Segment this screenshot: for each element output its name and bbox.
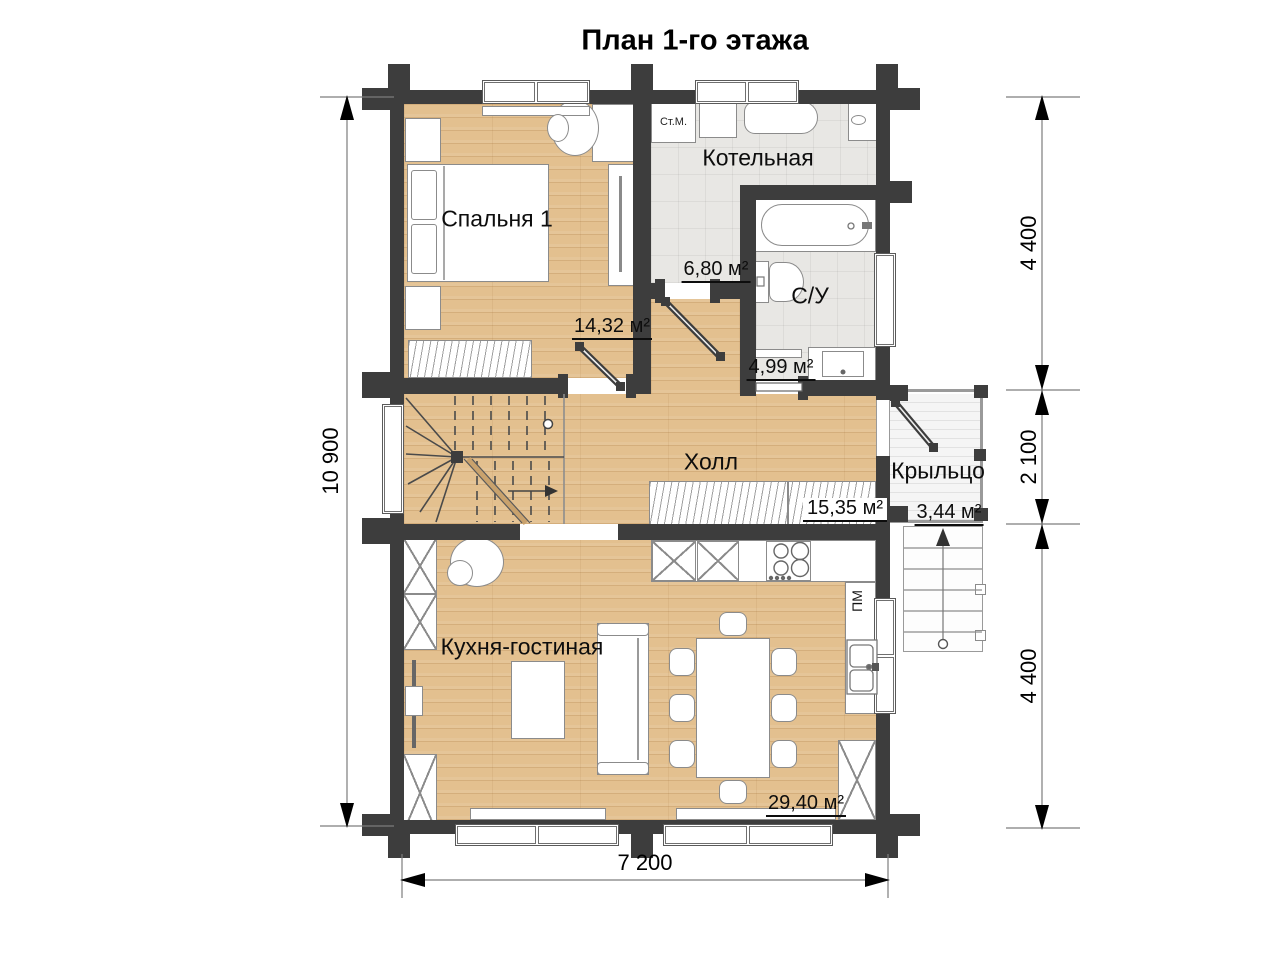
joint-tab — [362, 518, 392, 544]
dining-chair — [771, 694, 797, 722]
window-pane — [697, 82, 746, 102]
window-pane — [484, 82, 535, 102]
porch-area: 3,44 м² — [915, 502, 984, 526]
window — [663, 824, 833, 846]
dining-chair — [719, 780, 747, 804]
window — [695, 80, 799, 104]
window-sill — [482, 106, 590, 116]
bathtub-inner — [761, 204, 869, 246]
floor-plan: План 1-го этажа Ст.М. — [0, 0, 1280, 960]
hall-label: Холл — [684, 449, 738, 476]
outdoor-stairs-base — [903, 526, 983, 652]
left-cabinet — [403, 594, 437, 650]
wall-bathroom-bottom — [800, 380, 876, 396]
wall-bedroom-right — [633, 104, 651, 394]
window-pane — [749, 826, 831, 844]
bathroom-label: С/У — [791, 283, 829, 310]
bedroom-chair-arm — [547, 114, 569, 142]
washing-machine: Ст.М. — [651, 100, 696, 143]
wall — [876, 90, 890, 400]
coffee-table — [511, 661, 565, 739]
dim-bottom: 7 200 — [617, 850, 672, 876]
wall-hall-kitchen — [390, 524, 520, 540]
kitchen-label: Кухня-гостиная — [441, 634, 604, 661]
window-pane — [537, 82, 588, 102]
kitchen-cabinet — [652, 541, 696, 581]
window — [482, 80, 590, 104]
left-cabinet — [403, 538, 437, 594]
joint-tab — [890, 181, 912, 203]
window-pane — [665, 826, 747, 844]
mirror-line — [619, 176, 622, 272]
tv-console — [405, 686, 423, 716]
window-pane — [538, 826, 617, 844]
dining-table — [696, 638, 770, 778]
washing-machine-label: Ст.М. — [660, 116, 687, 128]
pillow — [411, 224, 437, 274]
dining-chair — [669, 694, 695, 722]
pillow — [411, 170, 437, 220]
dim-right-bottom: 4 400 — [1016, 648, 1042, 703]
sofa — [597, 623, 649, 775]
window — [382, 404, 404, 514]
wall-hall-kitchen — [618, 524, 876, 540]
nightstand — [405, 286, 441, 330]
porch-label: Крыльцо — [891, 458, 985, 485]
wall-bedroom-bottom — [404, 378, 566, 394]
bedroom-wardrobe — [408, 340, 532, 378]
window-pane — [748, 82, 797, 102]
porch-attach-tab — [888, 385, 908, 401]
boiler-area: 6,80 м² — [682, 259, 751, 283]
dim-right-top: 4 400 — [1016, 215, 1042, 270]
entry-door-opening — [876, 400, 890, 456]
window — [874, 253, 896, 347]
window-pane — [876, 657, 894, 712]
window-pane — [457, 826, 536, 844]
boiler-label: Котельная — [702, 145, 813, 172]
water-heater-tank — [744, 101, 818, 134]
wall-boiler-detail — [851, 115, 866, 125]
dishwasher-label: ПМ — [849, 590, 865, 612]
plan-title: План 1-го этажа — [581, 25, 808, 58]
window — [874, 598, 896, 714]
joint-tab — [362, 372, 392, 398]
sofa-armrest — [597, 762, 649, 775]
hall-corridor-floor — [651, 299, 740, 394]
dining-chair — [771, 740, 797, 768]
window-pane — [876, 255, 894, 345]
porch-attach-tab — [888, 506, 908, 522]
dining-chair — [669, 648, 695, 676]
dim-right-middle: 2 100 — [1016, 429, 1042, 484]
door-jamb — [558, 374, 568, 398]
sofa-back-line — [637, 638, 639, 760]
toilet-tank — [754, 261, 769, 303]
wall — [390, 90, 890, 104]
door-jamb — [655, 279, 665, 303]
corner-tab — [890, 88, 920, 110]
corner-tab — [362, 88, 392, 110]
wall-bathroom-top — [740, 185, 876, 200]
dim-left: 10 900 — [318, 427, 344, 494]
window-pane — [876, 600, 894, 655]
radiator — [470, 808, 606, 820]
living-armchair-arm — [447, 560, 473, 586]
joint-tab — [631, 64, 653, 92]
stove — [766, 541, 811, 581]
corner-tab — [388, 830, 410, 858]
wardrobe-divider — [787, 481, 789, 526]
corner-tab — [876, 830, 898, 858]
dining-chair — [719, 612, 747, 636]
fridge — [697, 541, 739, 581]
dining-chair — [771, 648, 797, 676]
dining-chair — [669, 740, 695, 768]
hall-area: 15,35 м² — [803, 498, 887, 522]
stair-rail-post — [975, 584, 986, 595]
bedroom-area: 14,32 м² — [572, 316, 652, 340]
porch-post — [974, 385, 988, 398]
window-pane — [384, 406, 402, 512]
window — [455, 824, 619, 846]
vanity-basin — [822, 351, 864, 377]
door-jamb — [626, 374, 636, 398]
bathroom-area: 4,99 м² — [747, 357, 816, 381]
kitchen-area: 29,40 м² — [766, 793, 846, 817]
stair-rail-post — [975, 630, 986, 641]
boiler-unit — [699, 102, 737, 138]
bedroom-label: Спальня 1 — [441, 206, 553, 233]
sofa-armrest — [597, 623, 649, 636]
nightstand — [405, 118, 441, 162]
